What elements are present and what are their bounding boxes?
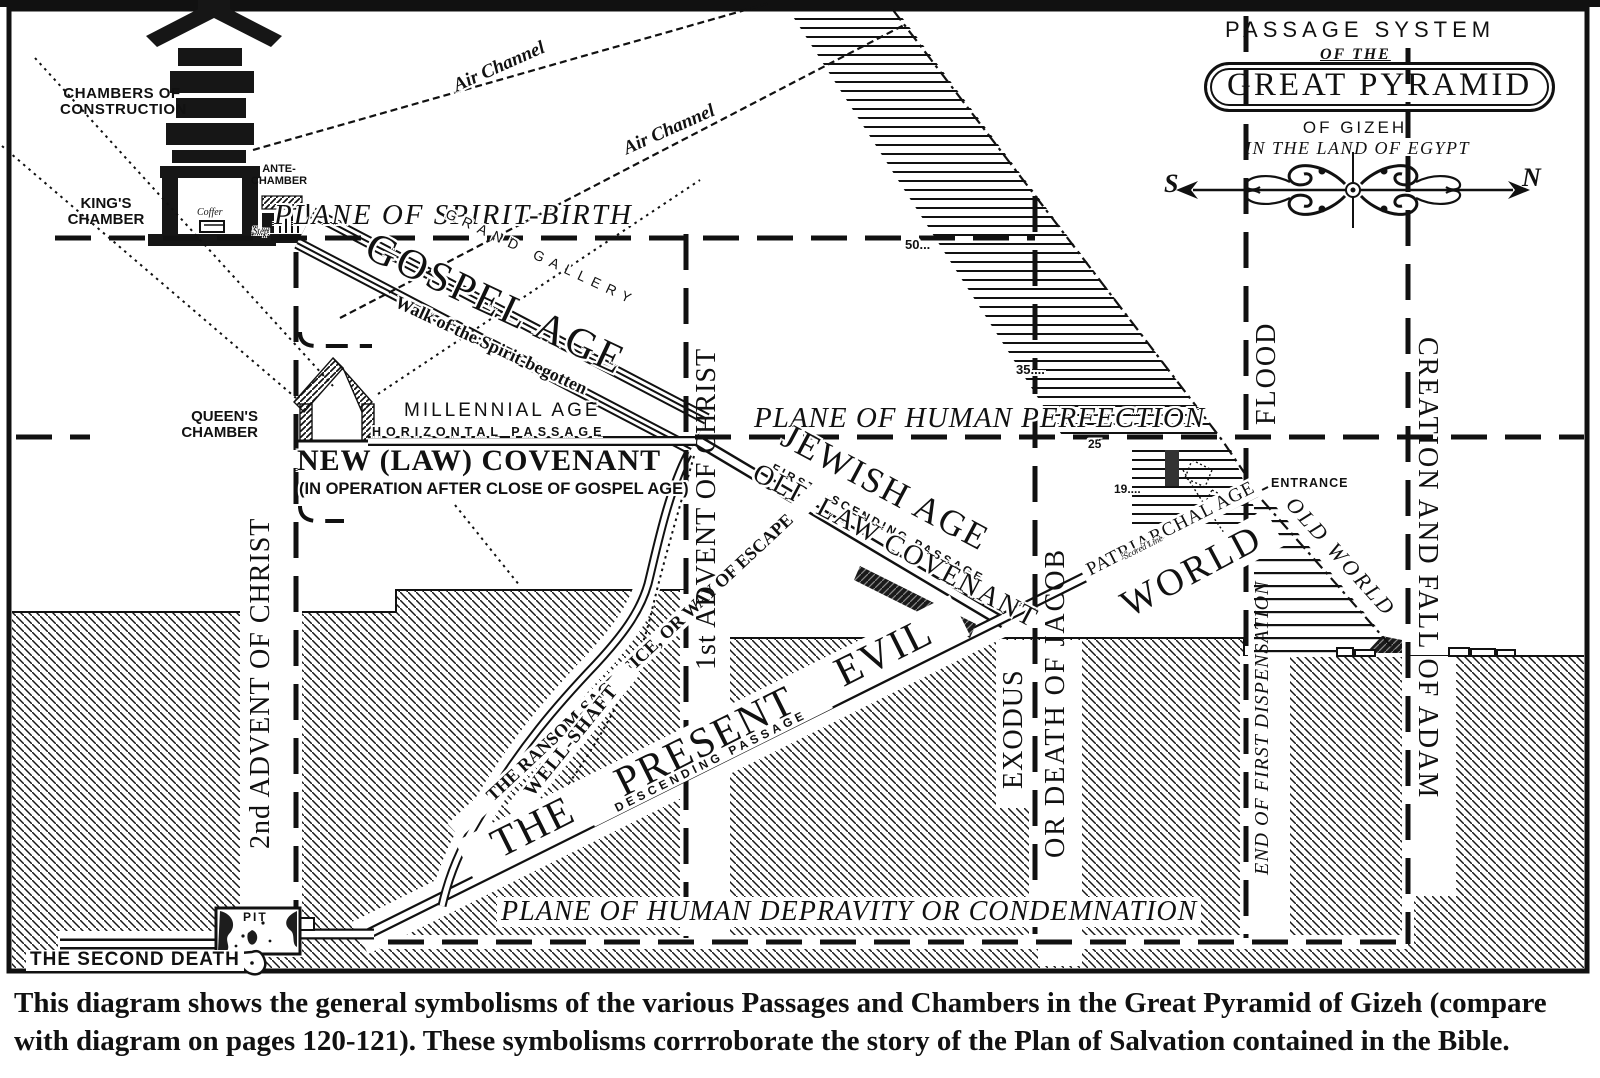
label-step: Step: [253, 227, 269, 237]
caption-line-2: with diagram on pages 120-121). These sy…: [14, 1026, 1510, 1057]
course-number-25: 25: [1088, 438, 1101, 451]
label-horizontal-passage: HORIZONTAL PASSAGE: [372, 426, 597, 440]
label-millennial-age: MILLENNIAL AGE: [404, 401, 574, 422]
column-creation-and-fall: CREATION AND FALL OF ADAM: [1412, 246, 1442, 891]
pyramid-passage-diagram: PASSAGE SYSTEM OF THE GREAT PYRAMID OF G…: [0, 0, 1600, 1078]
scan-edge: [0, 0, 1600, 7]
compass-south-label: S: [1164, 170, 1178, 198]
label-chambers-of-construction: CHAMBERS OF CONSTRUCTION: [60, 86, 184, 118]
label-plane-human-depravity: PLANE OF HUMAN DEPRAVITY OR CONDEMNATION: [497, 897, 1201, 927]
masonry-block: [1165, 450, 1179, 486]
course-number-35: 35....: [1016, 363, 1045, 377]
compass-rose-icon: [1176, 152, 1530, 228]
title-of-the: OF THE: [1320, 46, 1390, 63]
course-number-19: 19....: [1114, 483, 1141, 496]
title-stadium-frame: GREAT PYRAMID: [1204, 62, 1555, 112]
label-ante-chamber: ANTE- CHAMBER: [250, 164, 308, 188]
column-flood: FLOOD: [1252, 308, 1282, 438]
title-land-of-egypt: IN THE LAND OF EGYPT: [1245, 139, 1465, 158]
label-new-covenant: NEW (LAW) COVENANT: [297, 445, 661, 477]
title-great-pyramid: GREAT PYRAMID: [1204, 62, 1555, 112]
column-1st-advent: 1st ADVENT OF CHRIST: [692, 280, 722, 738]
label-second-death: THE SECOND DEATH: [26, 950, 244, 971]
column-end-first-dispensation: END OF FIRST DISPENSATION: [1252, 518, 1274, 938]
label-entrance: ENTRANCE: [1271, 477, 1348, 491]
queens-chamber-structure: [292, 354, 384, 442]
title-of-gizeh: OF GIZEH: [1300, 119, 1410, 137]
column-2nd-advent: 2nd ADVENT OF CHRIST: [246, 452, 276, 914]
label-new-covenant-note: (IN OPERATION AFTER CLOSE OF GOSPEL AGE): [299, 481, 689, 499]
caption-line-1: This diagram shows the general symbolism…: [14, 988, 1547, 1019]
column-death-of-jacob: OR DEATH OF JACOB: [1041, 442, 1071, 964]
compass-north-label: N: [1522, 164, 1541, 192]
label-coffer: Coffer: [197, 208, 223, 219]
title-passage-system: PASSAGE SYSTEM: [1225, 18, 1485, 42]
column-exodus: EXODUS: [999, 654, 1029, 804]
coffer-box: [200, 221, 224, 232]
label-pit: PIT: [243, 911, 268, 924]
course-number-50: 50...: [905, 238, 930, 252]
label-queens-chamber: QUEEN'S CHAMBER: [148, 409, 258, 441]
label-kings-chamber: KING'S CHAMBER: [58, 196, 154, 228]
pyramid-courses-upper: [790, 12, 1222, 440]
